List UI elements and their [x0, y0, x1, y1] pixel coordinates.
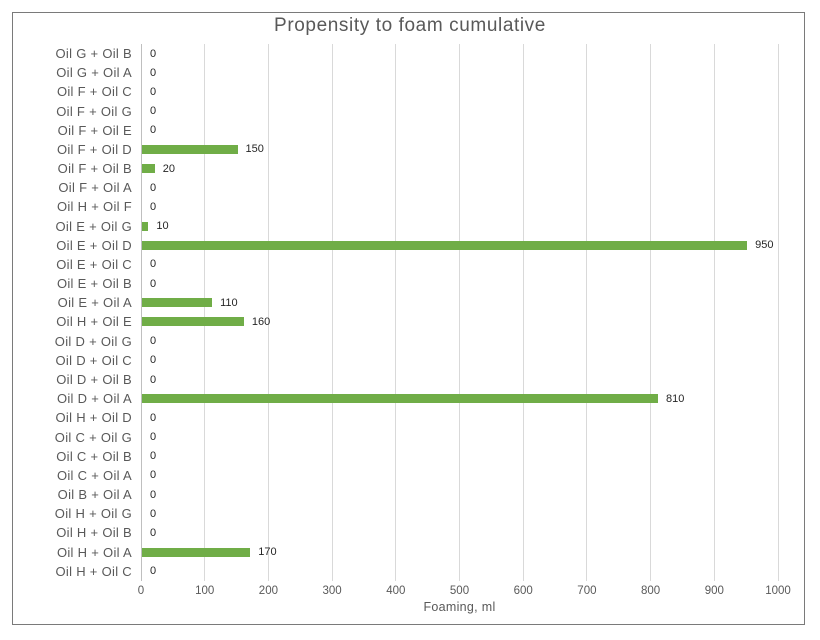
chart-row: Oil D + Oil A810 [141, 389, 778, 408]
chart-row: Oil E + Oil C0 [141, 255, 778, 274]
plot-area: Oil G + Oil B0Oil G + Oil A0Oil F + Oil … [141, 44, 778, 581]
category-label: Oil C + Oil B [56, 449, 132, 464]
category-label: Oil D + Oil A [57, 391, 132, 406]
value-label: 0 [150, 565, 156, 577]
value-label: 0 [150, 450, 156, 462]
chart-row: Oil D + Oil B0 [141, 370, 778, 389]
chart-row: Oil H + Oil E160 [141, 312, 778, 331]
value-label: 0 [150, 508, 156, 520]
value-label: 0 [150, 182, 156, 194]
chart-row: Oil H + Oil A170 [141, 542, 778, 561]
value-label: 0 [150, 48, 156, 60]
category-label: Oil F + Oil C [57, 84, 132, 99]
value-label: 0 [150, 335, 156, 347]
chart-title: Propensity to foam cumulative [0, 15, 820, 37]
chart-row: Oil F + Oil D150 [141, 140, 778, 159]
value-label: 0 [150, 105, 156, 117]
bar [142, 241, 747, 250]
chart-row: Oil E + Oil D950 [141, 236, 778, 255]
category-label: Oil F + Oil E [58, 123, 132, 138]
chart-row: Oil H + Oil D0 [141, 408, 778, 427]
value-label: 0 [150, 86, 156, 98]
bar [142, 548, 250, 557]
x-tick-label: 800 [641, 585, 660, 597]
category-label: Oil E + Oil A [58, 295, 132, 310]
chart-row: Oil D + Oil G0 [141, 332, 778, 351]
chart-row: Oil H + Oil G0 [141, 504, 778, 523]
category-label: Oil E + Oil B [57, 276, 132, 291]
category-label: Oil G + Oil A [56, 65, 132, 80]
bar [142, 145, 238, 154]
category-label: Oil H + Oil A [57, 545, 132, 560]
x-tick-label: 300 [323, 585, 342, 597]
chart-canvas: Propensity to foam cumulative Oil G + Oi… [0, 0, 820, 640]
bar [142, 298, 212, 307]
chart-row: Oil F + Oil B20 [141, 159, 778, 178]
value-label: 0 [150, 489, 156, 501]
category-label: Oil H + Oil C [56, 564, 133, 579]
chart-row: Oil E + Oil B0 [141, 274, 778, 293]
value-label: 0 [150, 124, 156, 136]
chart-row: Oil G + Oil B0 [141, 44, 778, 63]
value-label: 950 [755, 239, 773, 251]
chart-row: Oil H + Oil F0 [141, 197, 778, 216]
x-tick-label: 500 [450, 585, 469, 597]
category-label: Oil H + Oil F [57, 199, 132, 214]
chart-row: Oil C + Oil B0 [141, 447, 778, 466]
category-label: Oil H + Oil D [56, 410, 133, 425]
category-label: Oil H + Oil B [56, 525, 132, 540]
category-label: Oil D + Oil C [56, 353, 133, 368]
chart-row: Oil F + Oil A0 [141, 178, 778, 197]
value-label: 0 [150, 431, 156, 443]
x-tick-label: 700 [577, 585, 596, 597]
value-label: 0 [150, 278, 156, 290]
chart-row: Oil B + Oil A0 [141, 485, 778, 504]
value-label: 110 [220, 297, 238, 309]
category-label: Oil F + Oil G [56, 104, 132, 119]
category-label: Oil D + Oil G [55, 334, 132, 349]
category-label: Oil G + Oil B [56, 46, 133, 61]
value-label: 10 [156, 220, 168, 232]
bar-rows: Oil G + Oil B0Oil G + Oil A0Oil F + Oil … [141, 44, 778, 581]
chart-row: Oil C + Oil G0 [141, 427, 778, 446]
chart-row: Oil E + Oil G10 [141, 217, 778, 236]
category-label: Oil E + Oil D [56, 238, 132, 253]
value-label: 160 [252, 316, 270, 328]
value-label: 20 [163, 163, 175, 175]
x-tick-label: 100 [195, 585, 214, 597]
chart-row: Oil C + Oil A0 [141, 466, 778, 485]
value-label: 150 [246, 143, 264, 155]
x-tick-label: 1000 [765, 585, 791, 597]
x-tick-label: 0 [138, 585, 144, 597]
x-axis-title: Foaming, ml [141, 600, 778, 614]
category-label: Oil C + Oil G [55, 430, 132, 445]
value-label: 170 [258, 546, 276, 558]
x-tick-label: 600 [514, 585, 533, 597]
category-label: Oil F + Oil D [57, 142, 132, 157]
category-label: Oil H + Oil E [56, 314, 132, 329]
bar [142, 164, 155, 173]
value-label: 0 [150, 67, 156, 79]
value-label: 810 [666, 393, 684, 405]
value-label: 0 [150, 374, 156, 386]
value-label: 0 [150, 412, 156, 424]
bar [142, 394, 658, 403]
chart-row: Oil H + Oil B0 [141, 523, 778, 542]
value-label: 0 [150, 527, 156, 539]
category-label: Oil H + Oil G [55, 506, 132, 521]
bar [142, 222, 148, 231]
category-label: Oil E + Oil G [56, 219, 133, 234]
x-axis-ticks: 01002003004005006007008009001000 [141, 585, 778, 599]
x-tick-label: 900 [705, 585, 724, 597]
chart-row: Oil E + Oil A110 [141, 293, 778, 312]
category-label: Oil F + Oil B [58, 161, 132, 176]
x-tick-label: 400 [386, 585, 405, 597]
chart-row: Oil F + Oil G0 [141, 102, 778, 121]
category-label: Oil B + Oil A [58, 487, 132, 502]
chart-row: Oil F + Oil C0 [141, 82, 778, 101]
value-label: 0 [150, 469, 156, 481]
value-label: 0 [150, 201, 156, 213]
category-label: Oil D + Oil B [56, 372, 132, 387]
category-label: Oil C + Oil A [57, 468, 132, 483]
chart-row: Oil D + Oil C0 [141, 351, 778, 370]
value-label: 0 [150, 258, 156, 270]
category-label: Oil F + Oil A [58, 180, 132, 195]
value-label: 0 [150, 354, 156, 366]
chart-row: Oil F + Oil E0 [141, 121, 778, 140]
category-label: Oil E + Oil C [56, 257, 132, 272]
chart-row: Oil G + Oil A0 [141, 63, 778, 82]
x-tick-label: 200 [259, 585, 278, 597]
chart-row: Oil H + Oil C0 [141, 562, 778, 581]
bar [142, 317, 244, 326]
